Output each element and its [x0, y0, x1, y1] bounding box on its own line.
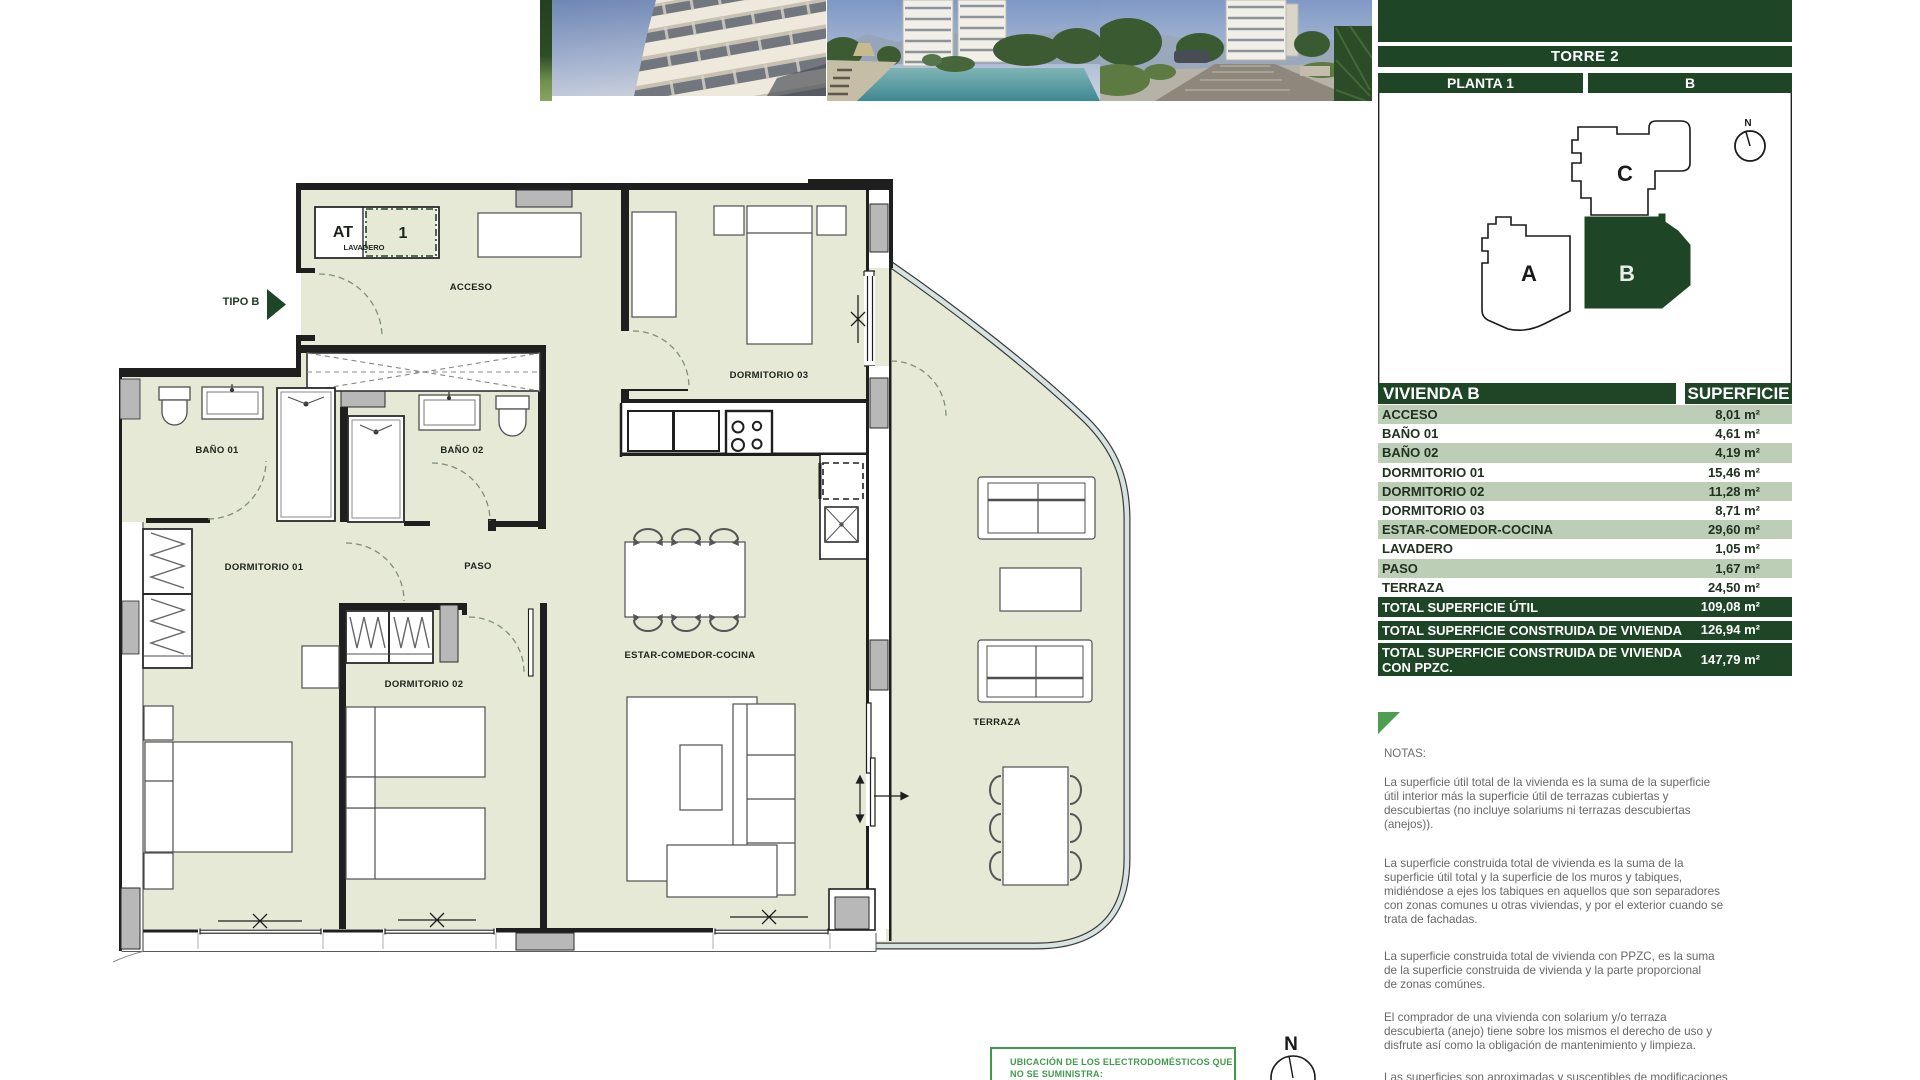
svg-text:B: B: [1619, 261, 1635, 286]
svg-text:PASO: PASO: [464, 561, 491, 572]
svg-text:BAÑO 01: BAÑO 01: [195, 445, 239, 456]
svg-text:DORMITORIO 02: DORMITORIO 02: [385, 679, 464, 690]
svg-text:ACCESO: ACCESO: [450, 282, 492, 293]
svg-text:TIPO B: TIPO B: [223, 296, 260, 308]
svg-text:DORMITORIO 01: DORMITORIO 01: [225, 562, 304, 573]
svg-text:C: C: [1617, 161, 1633, 186]
svg-text:DORMITORIO 03: DORMITORIO 03: [730, 370, 809, 381]
svg-text:LAVADERO: LAVADERO: [344, 243, 385, 252]
svg-text:BAÑO 02: BAÑO 02: [440, 445, 483, 456]
svg-text:1: 1: [399, 225, 408, 242]
svg-text:TERRAZA: TERRAZA: [973, 717, 1021, 728]
svg-text:A: A: [1521, 261, 1537, 286]
svg-text:ESTAR-COMEDOR-COCINA: ESTAR-COMEDOR-COCINA: [625, 650, 756, 661]
svg-text:N: N: [1744, 118, 1751, 129]
svg-text:AT: AT: [333, 224, 353, 241]
